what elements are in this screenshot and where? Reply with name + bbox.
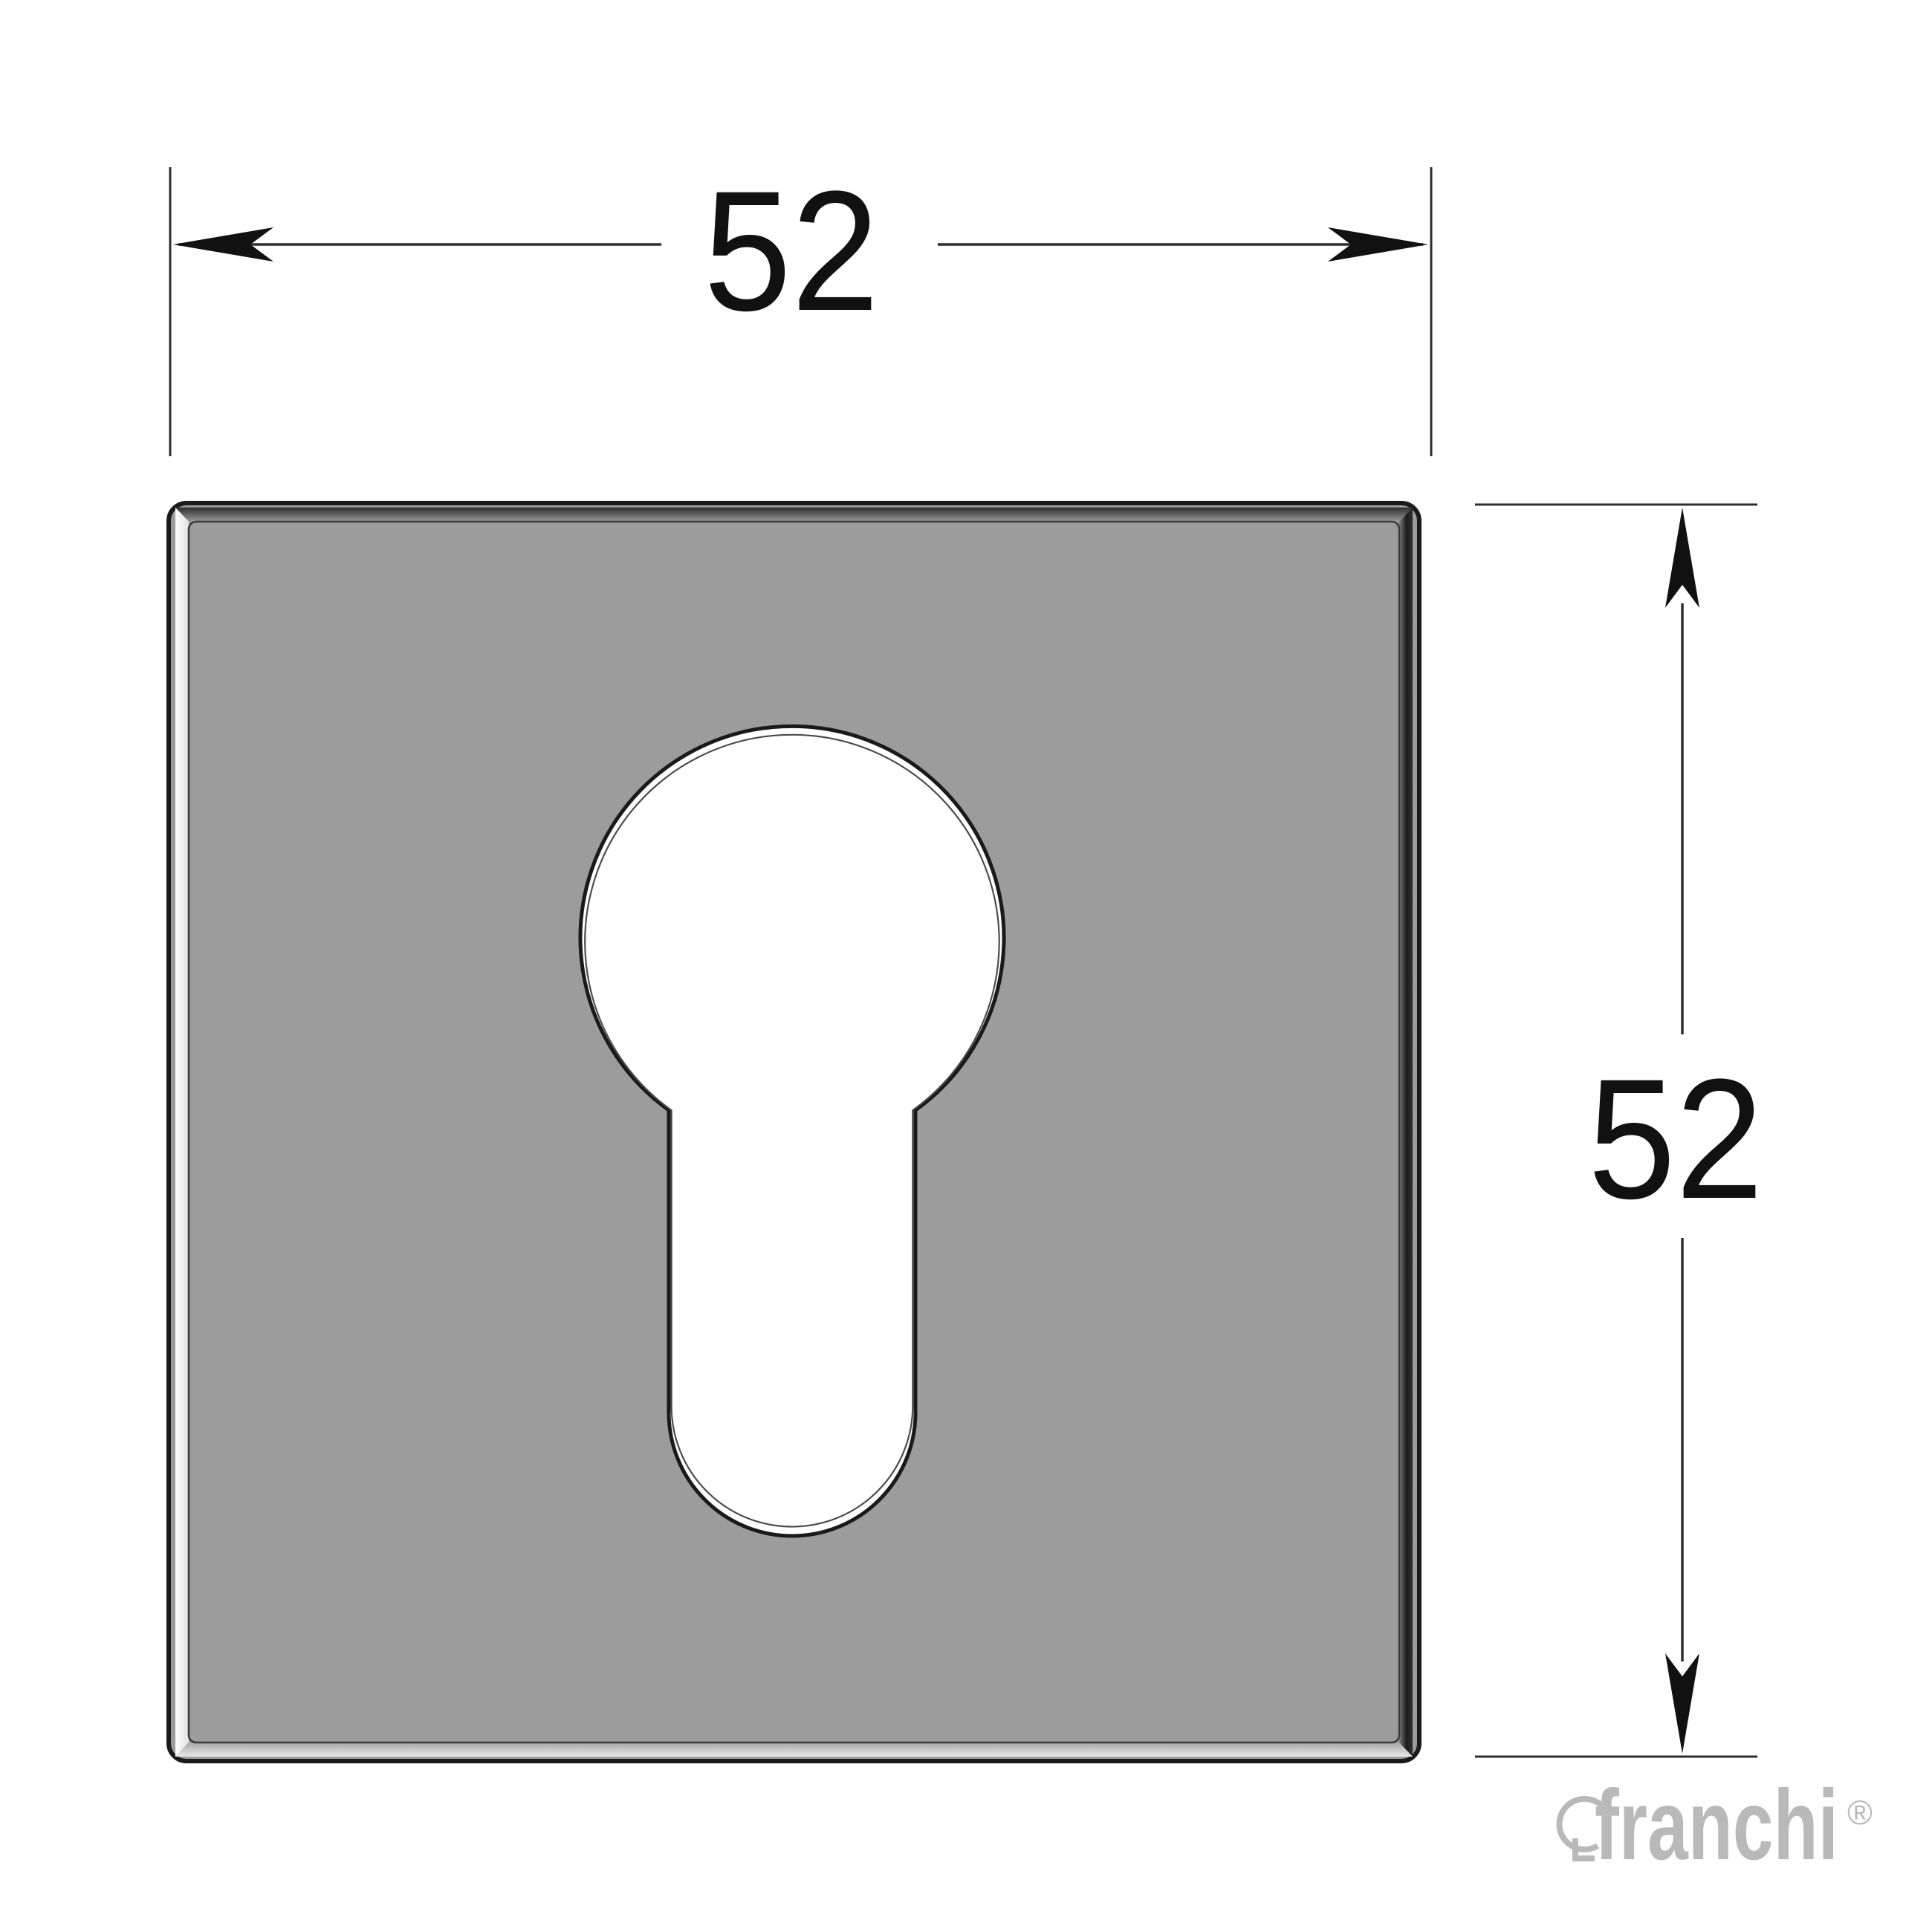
plate-bevel-top (175, 508, 1413, 522)
escutcheon-plate (169, 503, 1419, 1761)
plate-bevel-left (175, 508, 189, 1757)
brand-name-text: franchi (1595, 1770, 1838, 1881)
plate-bevel-bottom (175, 1743, 1413, 1757)
plate-bevel-right (1399, 508, 1413, 1757)
brand-logo: franchi ® (1559, 1770, 1873, 1881)
height-value-label: 52 (1588, 1043, 1763, 1234)
arrowhead-up-icon (1665, 508, 1699, 608)
technical-drawing-canvas: 52 52 franchi ® (0, 0, 1932, 1932)
registered-trademark-icon: ® (1847, 1793, 1873, 1832)
arrowhead-down-icon (1665, 1653, 1699, 1754)
width-value-label: 52 (704, 155, 879, 346)
escutcheon-dimension-drawing: 52 52 franchi ® (0, 0, 1932, 1932)
